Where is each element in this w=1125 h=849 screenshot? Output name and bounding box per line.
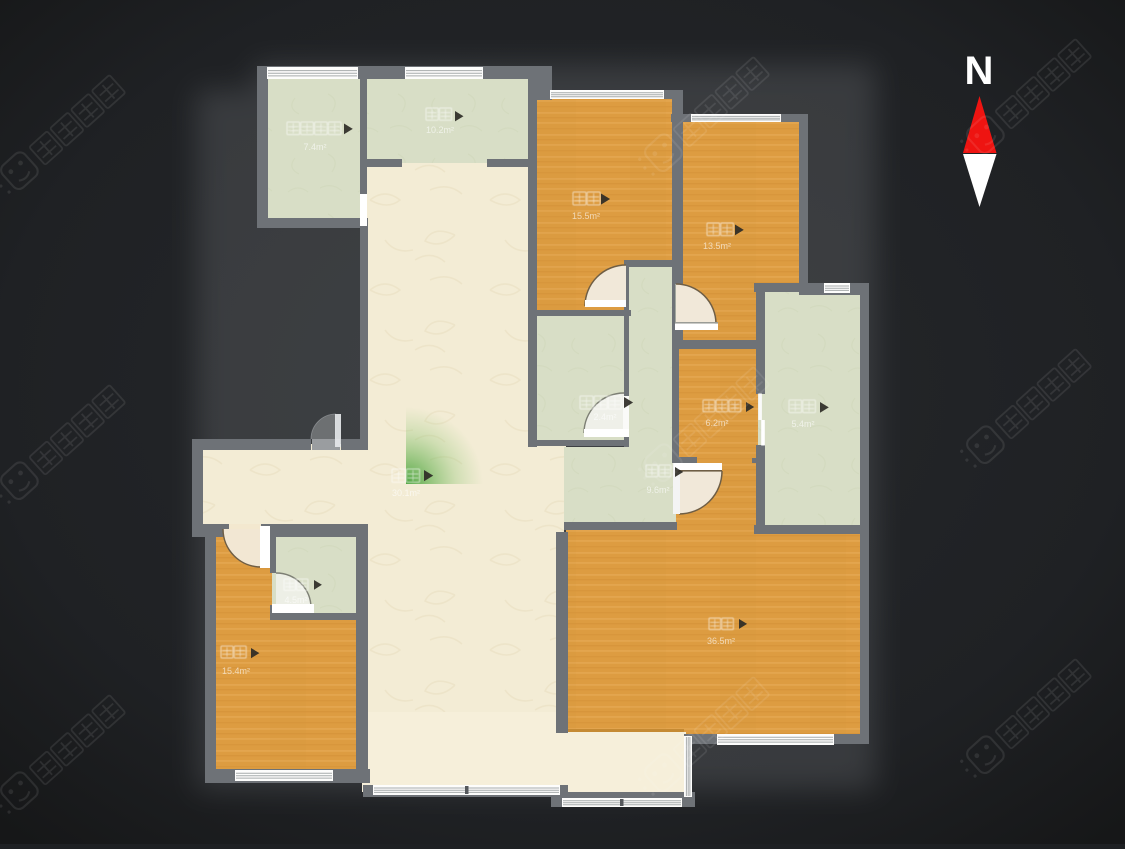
svg-text:N: N [965,49,994,93]
svg-text:5.4m²: 5.4m² [791,419,814,429]
svg-text:13.5m²: 13.5m² [703,241,731,251]
svg-text:36.5m²: 36.5m² [707,636,735,646]
svg-text:15.4m²: 15.4m² [222,666,250,676]
svg-text:30.1m²: 30.1m² [392,488,420,498]
svg-text:10.2m²: 10.2m² [426,125,454,135]
svg-text:7.4m²: 7.4m² [303,142,326,152]
svg-text:2.4m²: 2.4m² [593,412,616,422]
svg-text:9.6m²: 9.6m² [646,485,669,495]
svg-text:4.5m²: 4.5m² [284,595,307,605]
svg-text:15.5m²: 15.5m² [572,211,600,221]
